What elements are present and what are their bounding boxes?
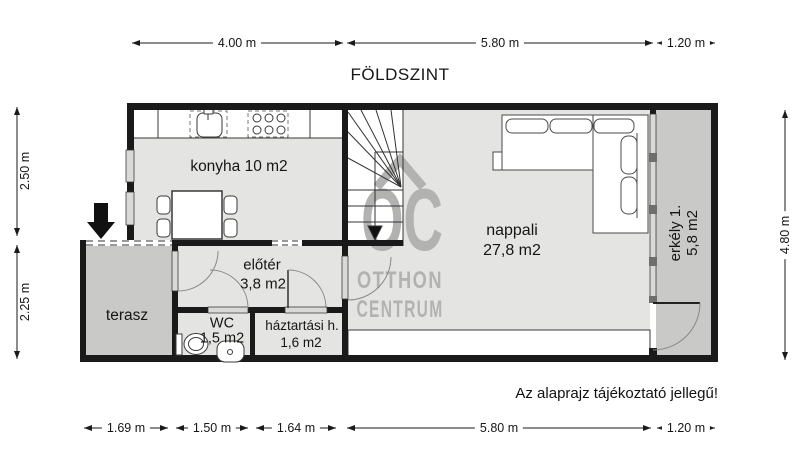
room-area-haztartasi: 1,6 m2 (280, 335, 321, 351)
watermark-oc: OC (361, 171, 443, 270)
dim-left-2: 2.25 m (18, 278, 32, 326)
room-area-erkely: 5,8 m2 (684, 205, 701, 262)
dim-top-2: 5.80 m (476, 36, 524, 50)
dim-bottom-4: 5.80 m (475, 421, 523, 435)
utility-door-icon (285, 307, 327, 313)
table-icon (172, 191, 222, 239)
kitchen-counter (134, 110, 343, 138)
chair-icon (157, 196, 170, 214)
terasz-floor (86, 246, 172, 356)
room-label-nappali: nappali (486, 222, 538, 240)
room-label-terasz: terasz (106, 307, 148, 325)
living-room-door-icon (342, 256, 348, 299)
dim-bottom-3: 1.64 m (272, 421, 320, 435)
watermark-centrum: CENTRUM (356, 297, 443, 323)
dim-top-1: 4.00 m (213, 36, 261, 50)
dim-bottom-1: 1.69 m (102, 421, 150, 435)
room-area-nappali: 27,8 m2 (483, 242, 541, 260)
room-label-konyha: konyha 10 m2 (190, 158, 287, 176)
room-area-wc: 1,5 m2 (200, 331, 244, 348)
dim-bottom-5: 1.20 m (662, 421, 710, 435)
dim-bottom-2: 1.50 m (188, 421, 236, 435)
toilet-icon (176, 334, 182, 355)
floor-plan: OC OTTHON CENTRUM (0, 0, 800, 473)
room-area-eloter: 3,8 m2 (240, 275, 286, 292)
disclaimer-note: Az alaprajz tájékoztató jellegű! (515, 385, 718, 402)
window-icon (126, 192, 134, 225)
room-label-erkely-name: erkély 1. (667, 205, 684, 262)
wc-door-icon (208, 307, 248, 313)
window-icon (126, 150, 134, 182)
cabinet (348, 330, 650, 356)
entrance-door-icon (172, 251, 178, 291)
dim-top-3: 1.20 m (662, 36, 710, 50)
watermark-otthon: OTTHON (357, 267, 443, 294)
room-label-haztartasi: háztartási h. (265, 318, 339, 334)
page-title: FÖLDSZINT (351, 65, 450, 85)
dim-left-1: 2.50 m (18, 147, 32, 195)
room-label-erkely: erkély 1. 5,8 m2 (667, 205, 702, 262)
chair-icon (224, 219, 237, 237)
sink-icon (197, 113, 222, 137)
entrance-arrow-icon (87, 203, 115, 239)
chair-icon (224, 196, 237, 214)
room-label-eloter: előtér (243, 256, 281, 273)
chair-icon (157, 219, 170, 237)
dim-right-1: 4.80 m (778, 211, 792, 259)
